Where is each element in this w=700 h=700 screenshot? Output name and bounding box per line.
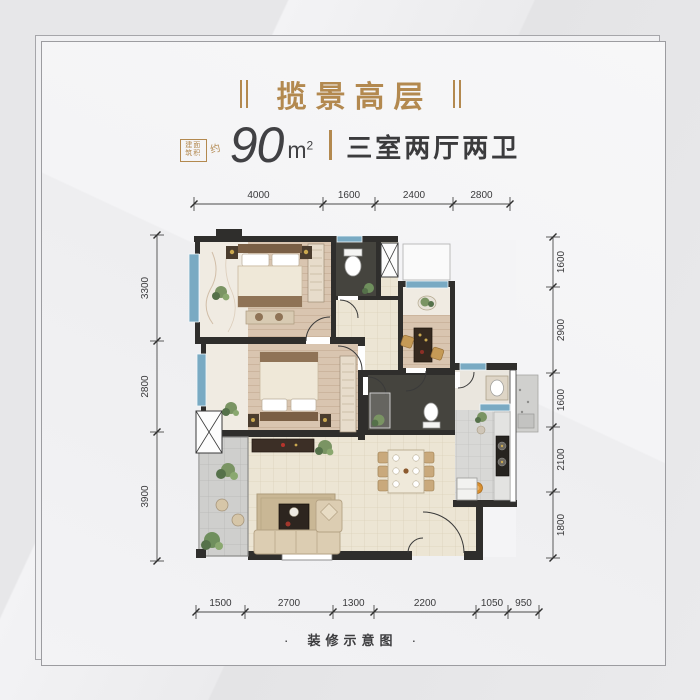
svg-text:2700: 2700 [278, 598, 301, 609]
svg-text:2100: 2100 [556, 448, 567, 471]
svg-text:4000: 4000 [247, 190, 270, 201]
dimension-chain-left: 330028003900 [140, 232, 164, 565]
svg-text:1600: 1600 [556, 388, 567, 411]
svg-text:1600: 1600 [338, 190, 361, 201]
svg-text:1800: 1800 [556, 513, 567, 536]
floorplan-poster: { "page": { "background_color": "#eaeaec… [0, 0, 700, 700]
svg-text:2900: 2900 [556, 318, 567, 341]
dimension-chain-bottom: 15002700130022001050950 [193, 598, 543, 619]
footer-dot-left: · [284, 633, 289, 647]
footer-caption: 装修示意图 [302, 630, 397, 649]
washroom-fixtures [486, 376, 508, 400]
svg-text:1500: 1500 [209, 598, 232, 609]
footer: · 装修示意图 · [0, 630, 700, 649]
dimension-chain-right: 16002900160021001800 [546, 234, 567, 562]
svg-text:1300: 1300 [342, 598, 365, 609]
dining-set [378, 450, 434, 493]
dimension-chain-top: 4000160024002800 [191, 190, 514, 211]
footer-dot-right: · [412, 633, 417, 647]
svg-text:2200: 2200 [414, 598, 437, 609]
svg-text:950: 950 [515, 598, 532, 609]
floorplan-drawing: 4000160024002800 15002700130022001050950… [0, 0, 700, 700]
svg-text:3300: 3300 [140, 276, 151, 299]
svg-text:2800: 2800 [140, 375, 151, 398]
service-platform [515, 375, 538, 432]
svg-text:3900: 3900 [140, 485, 151, 508]
svg-text:2400: 2400 [403, 190, 426, 201]
svg-text:1600: 1600 [556, 250, 567, 273]
svg-text:2800: 2800 [470, 190, 493, 201]
svg-text:1050: 1050 [481, 598, 504, 609]
